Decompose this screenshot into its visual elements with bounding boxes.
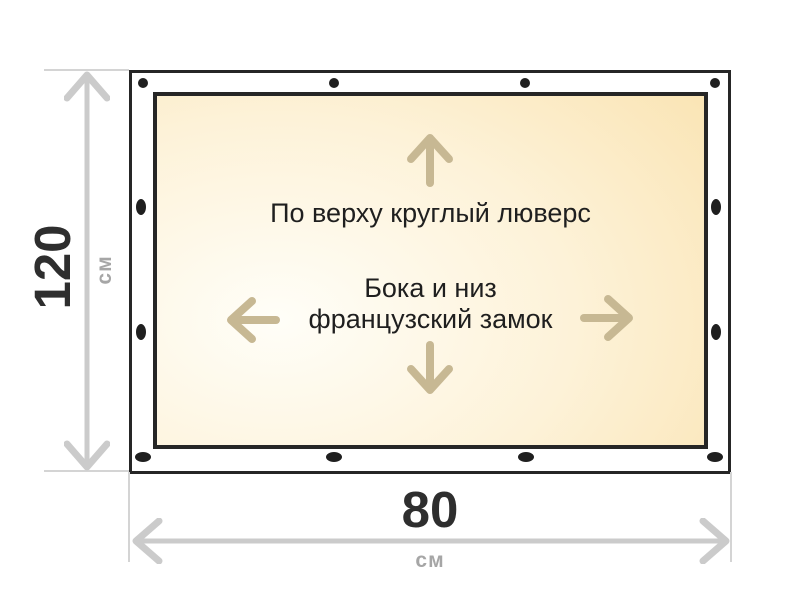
- grommet-dot: [711, 324, 721, 340]
- grommet-dot: [326, 452, 342, 462]
- width-dimension-value: 80: [330, 486, 530, 534]
- grommet-dot: [136, 199, 146, 215]
- arrow-up-icon: [405, 131, 455, 189]
- grommet-dot: [520, 78, 530, 88]
- side-fastening-note-line2: французский замок: [153, 304, 708, 335]
- grommet-dot: [329, 78, 339, 88]
- grommet-dot: [518, 452, 534, 462]
- width-dimension-unit: см: [380, 549, 480, 573]
- grommet-dot: [711, 199, 721, 215]
- grommet-dot: [710, 78, 720, 88]
- grommet-dot: [138, 78, 148, 88]
- grommet-dot: [707, 452, 723, 462]
- top-fastening-note: По верху круглый люверс: [153, 198, 708, 229]
- width-dimension-tick-left: [128, 472, 130, 562]
- height-dimension-unit: см: [93, 230, 117, 310]
- height-dimension-value: 120: [25, 187, 81, 347]
- arrow-down-icon: [405, 339, 455, 397]
- side-fastening-note: Бока и низ французский замок: [153, 273, 708, 335]
- grommet-dot: [136, 324, 146, 340]
- grommet-dot: [135, 452, 151, 462]
- side-fastening-note-line1: Бока и низ: [153, 273, 708, 304]
